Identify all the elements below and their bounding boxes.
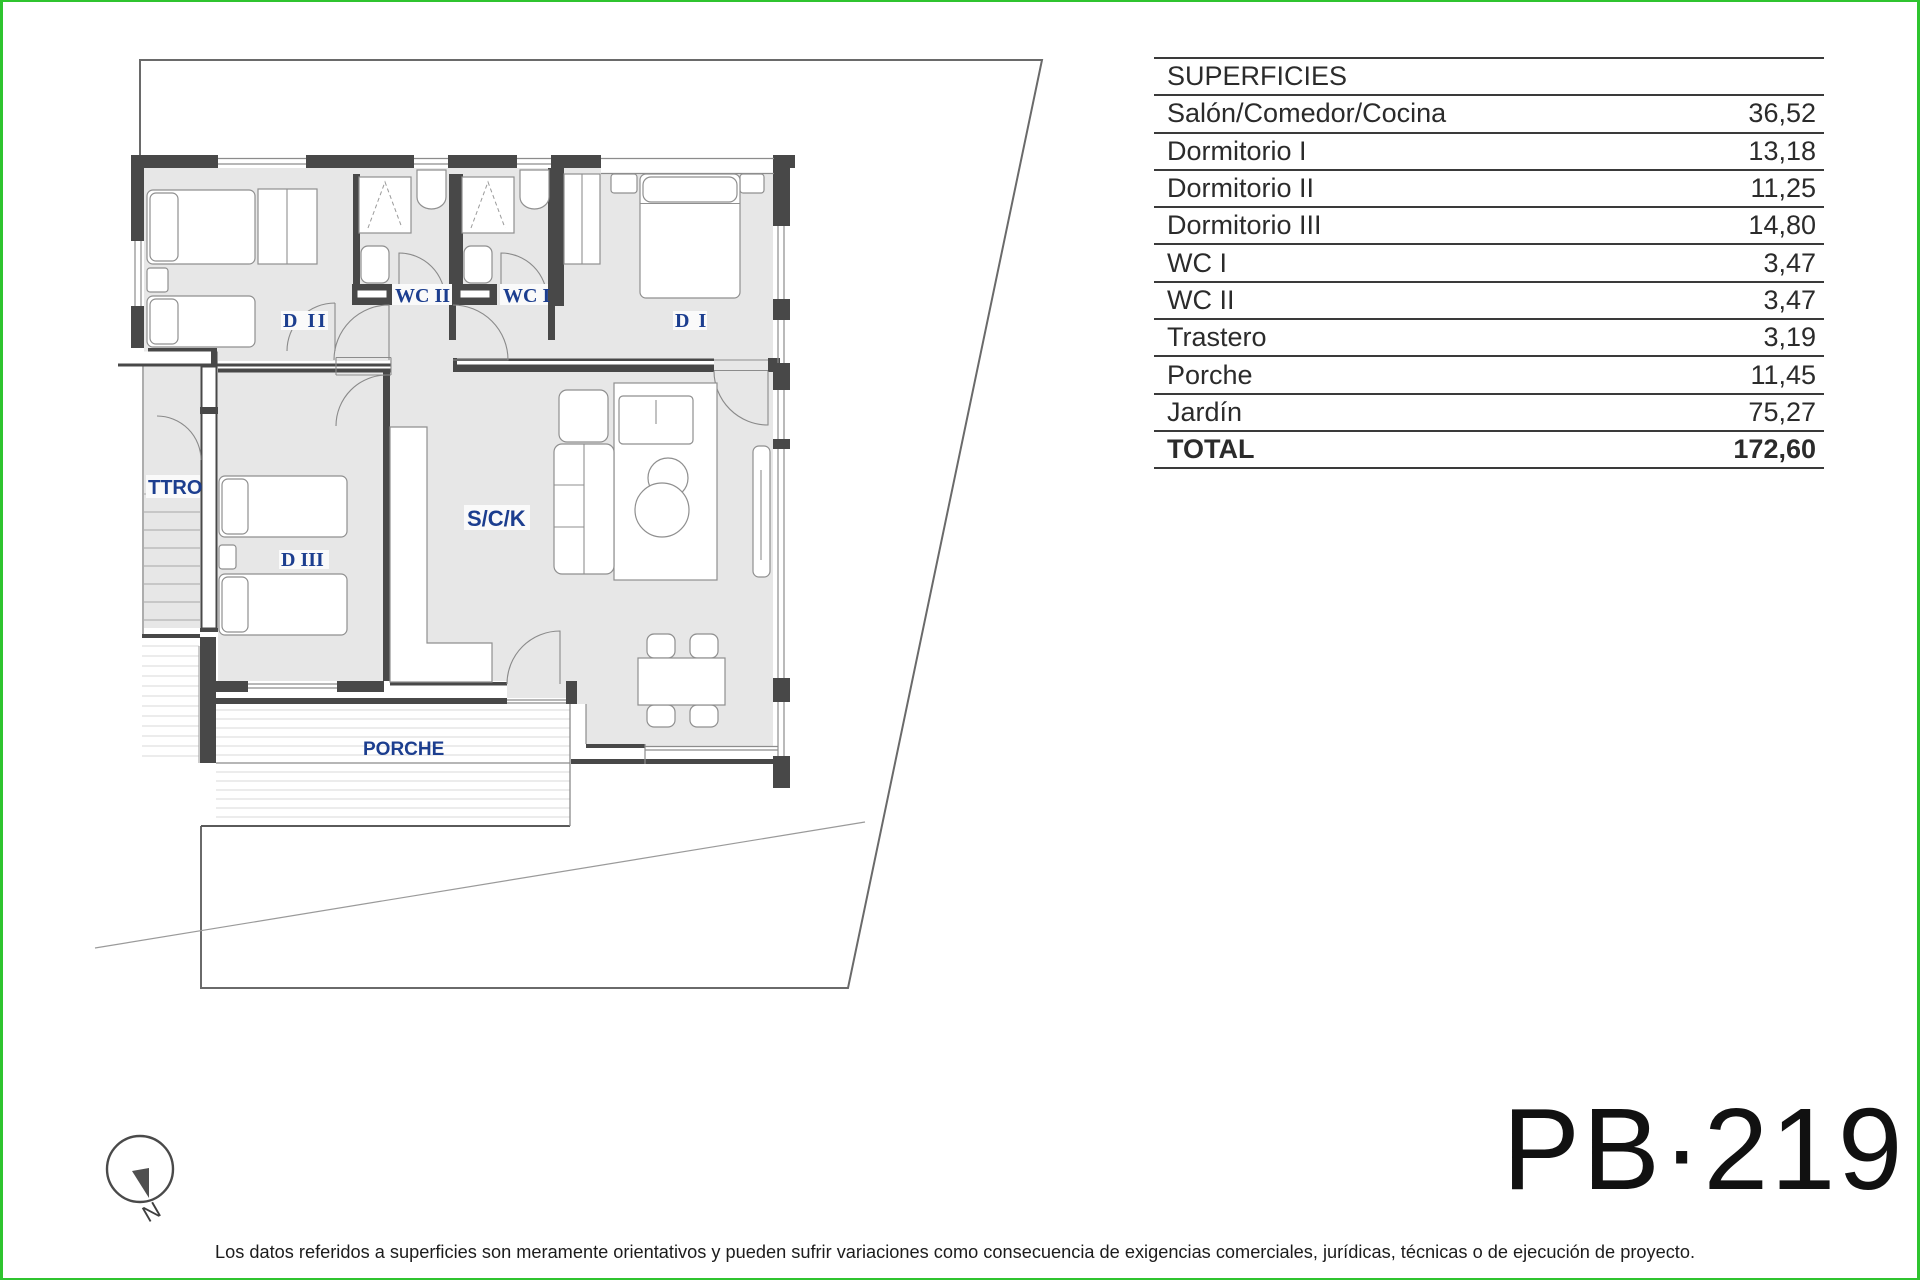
svg-text:D II: D II	[283, 310, 328, 332]
svg-text:D I: D I	[675, 310, 708, 332]
svg-text:WC II: WC II	[395, 285, 450, 307]
svg-text:TTRO: TTRO	[148, 477, 202, 499]
svg-text:WC I: WC I	[503, 285, 550, 307]
svg-text:S/C/K: S/C/K	[467, 506, 526, 531]
svg-text:PORCHE: PORCHE	[363, 739, 444, 760]
svg-text:D III: D III	[281, 549, 324, 571]
